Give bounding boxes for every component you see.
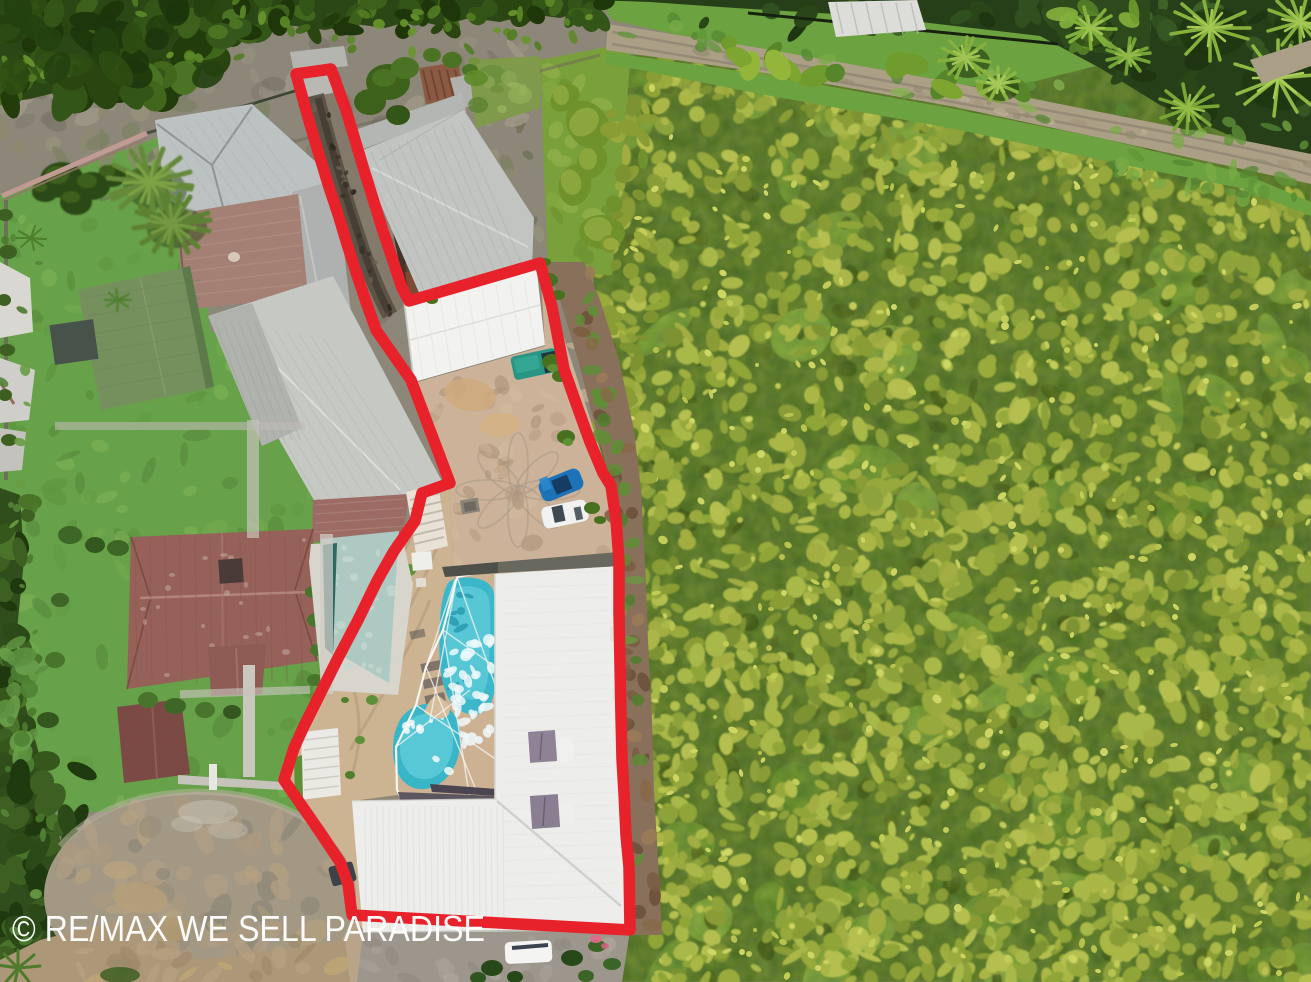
svg-text:© RE/MAX WE SELL PARADISE: © RE/MAX WE SELL PARADISE bbox=[12, 908, 485, 949]
